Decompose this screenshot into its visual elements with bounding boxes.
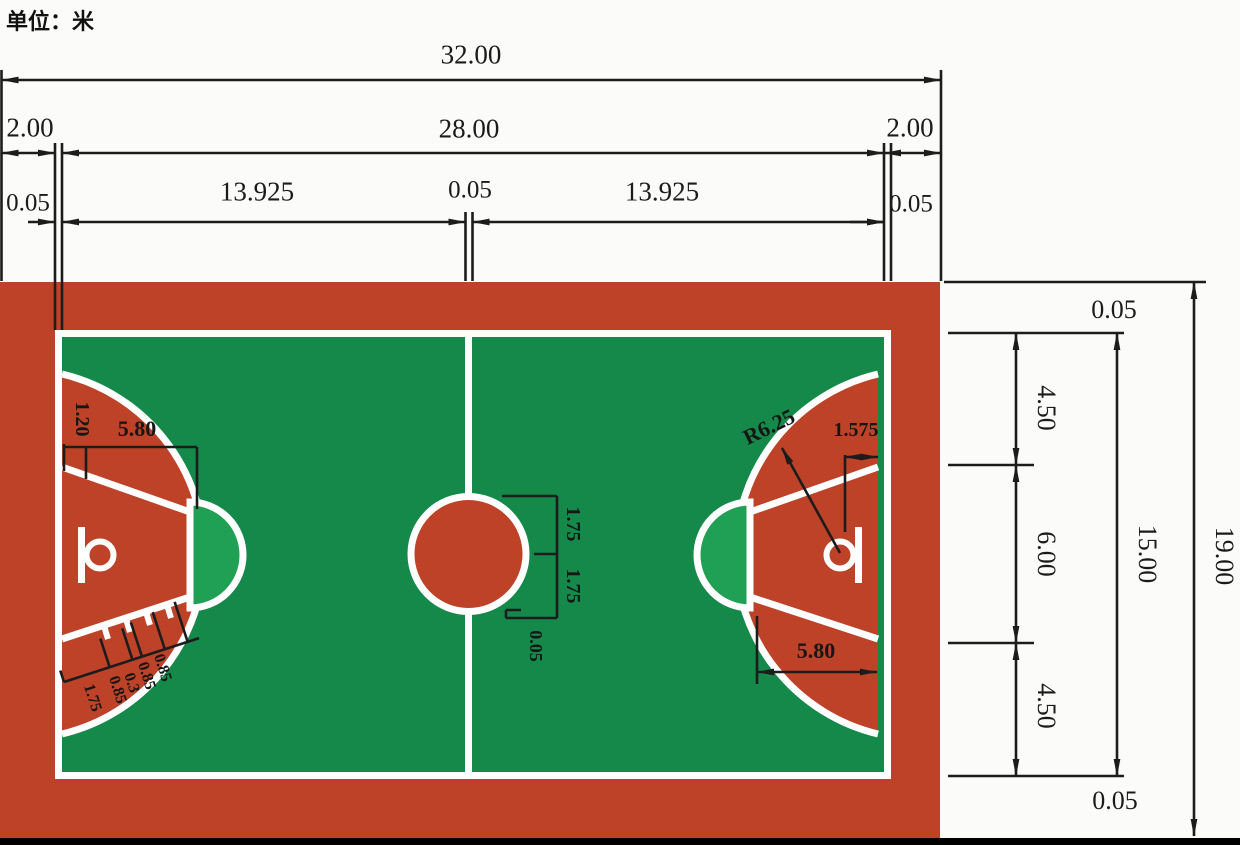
dim-linewidth-left: 0.05 [6, 191, 50, 216]
dim-centerline-width: 0.05 [527, 630, 545, 662]
dim-freethrow-left: 5.80 [118, 418, 157, 440]
court-dimension-diagram: 单位：米 32.00 2.00 28.00 2.00 0.05 13.925 0… [0, 0, 1240, 845]
playing-court [55, 330, 891, 779]
bottom-edge-bar [0, 838, 1240, 845]
dim-circle-radius-bottom: 1.75 [563, 569, 583, 604]
dim-lane-width: 6.00 [1033, 531, 1059, 577]
dim-linewidth-center: 0.05 [448, 178, 492, 203]
dim-sideline-linewidth-bottom: 0.05 [1092, 788, 1138, 814]
dim-half-court-left: 13.925 [220, 179, 294, 206]
dim-overall-width: 32.00 [441, 42, 502, 69]
dim-half-court-right: 13.925 [625, 179, 699, 206]
dim-buffer-right: 2.00 [886, 115, 933, 142]
dim-buffer-left: 2.00 [6, 115, 53, 142]
dim-court-length: 28.00 [439, 116, 500, 143]
dim-sideline-linewidth-top: 0.05 [1091, 297, 1137, 323]
dim-backboard-offset: 1.20 [72, 402, 92, 437]
unit-label: 单位：米 [6, 4, 94, 36]
dim-overall-height: 19.00 [1211, 527, 1237, 586]
center-circle [411, 497, 526, 612]
dim-lane-side-top: 4.50 [1033, 385, 1059, 431]
dim-lane-side-bottom: 4.50 [1033, 683, 1059, 729]
dim-circle-radius-top: 1.75 [563, 507, 583, 542]
dim-court-width: 15.00 [1134, 525, 1160, 584]
dim-freethrow-right: 5.80 [797, 640, 836, 662]
dim-linewidth-right: 0.05 [889, 192, 933, 217]
dim-basket-offset: 1.575 [834, 420, 879, 440]
